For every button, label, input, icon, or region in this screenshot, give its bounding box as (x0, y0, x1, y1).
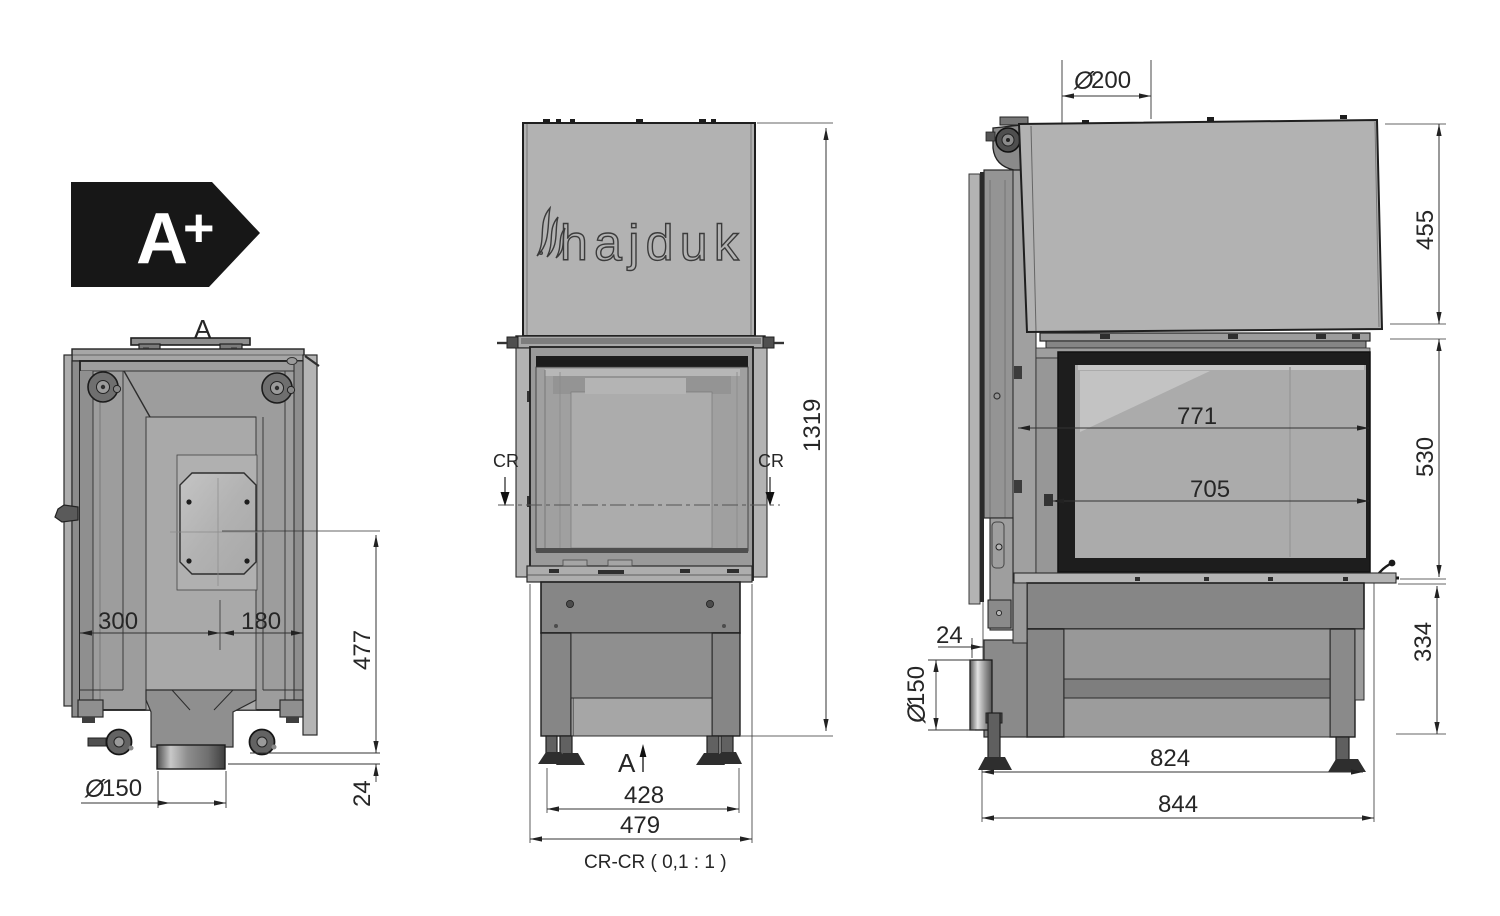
svg-text:200: 200 (1091, 67, 1131, 94)
svg-text:428: 428 (624, 782, 664, 809)
svg-text:150: 150 (102, 775, 142, 802)
svg-text:150: 150 (903, 666, 930, 706)
svg-text:A: A (618, 748, 636, 778)
svg-text:CR-CR ( 0,1 : 1 ): CR-CR ( 0,1 : 1 ) (584, 852, 727, 873)
svg-text:530: 530 (1412, 437, 1439, 477)
svg-text:824: 824 (1150, 745, 1190, 772)
svg-text:479: 479 (620, 812, 660, 839)
svg-text:hajduk: hajduk (560, 215, 745, 271)
svg-text:24: 24 (349, 780, 376, 807)
svg-text:844: 844 (1158, 791, 1198, 818)
svg-text:+: + (183, 198, 215, 258)
svg-text:300: 300 (98, 608, 138, 635)
svg-text:334: 334 (1410, 622, 1437, 662)
svg-text:477: 477 (349, 630, 376, 670)
svg-text:705: 705 (1190, 476, 1230, 503)
svg-text:180: 180 (241, 608, 281, 635)
svg-text:1319: 1319 (799, 399, 826, 452)
svg-text:A: A (136, 199, 188, 279)
svg-text:771: 771 (1177, 403, 1217, 430)
svg-text:455: 455 (1412, 210, 1439, 250)
svg-text:CR: CR (493, 451, 519, 471)
svg-text:CR: CR (758, 451, 784, 471)
svg-text:24: 24 (936, 622, 963, 649)
